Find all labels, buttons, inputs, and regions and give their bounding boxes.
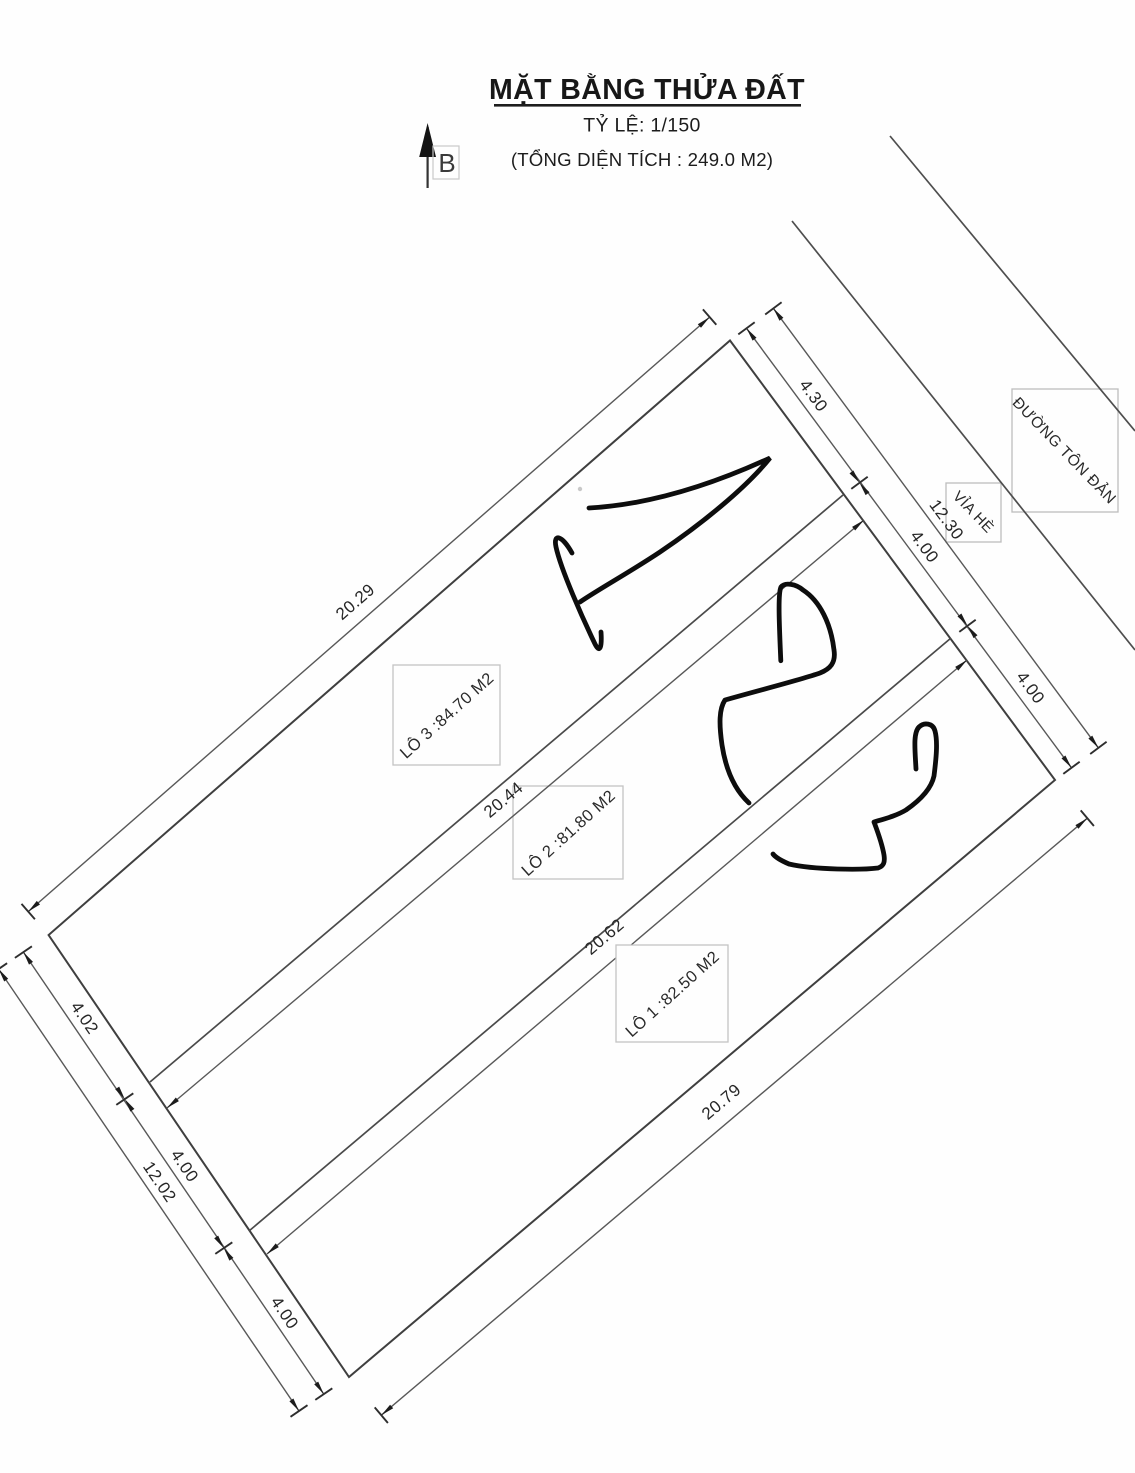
svg-text:B: B: [438, 148, 455, 178]
svg-text:MẶT BẰNG THỬA ĐẤT: MẶT BẰNG THỬA ĐẤT: [489, 73, 805, 106]
svg-text:(TỔNG DIỆN TÍCH : 249.0 M2): (TỔNG DIỆN TÍCH : 249.0 M2): [511, 149, 773, 170]
svg-text:TỶ LỆ: 1/150: TỶ LỆ: 1/150: [583, 114, 700, 137]
